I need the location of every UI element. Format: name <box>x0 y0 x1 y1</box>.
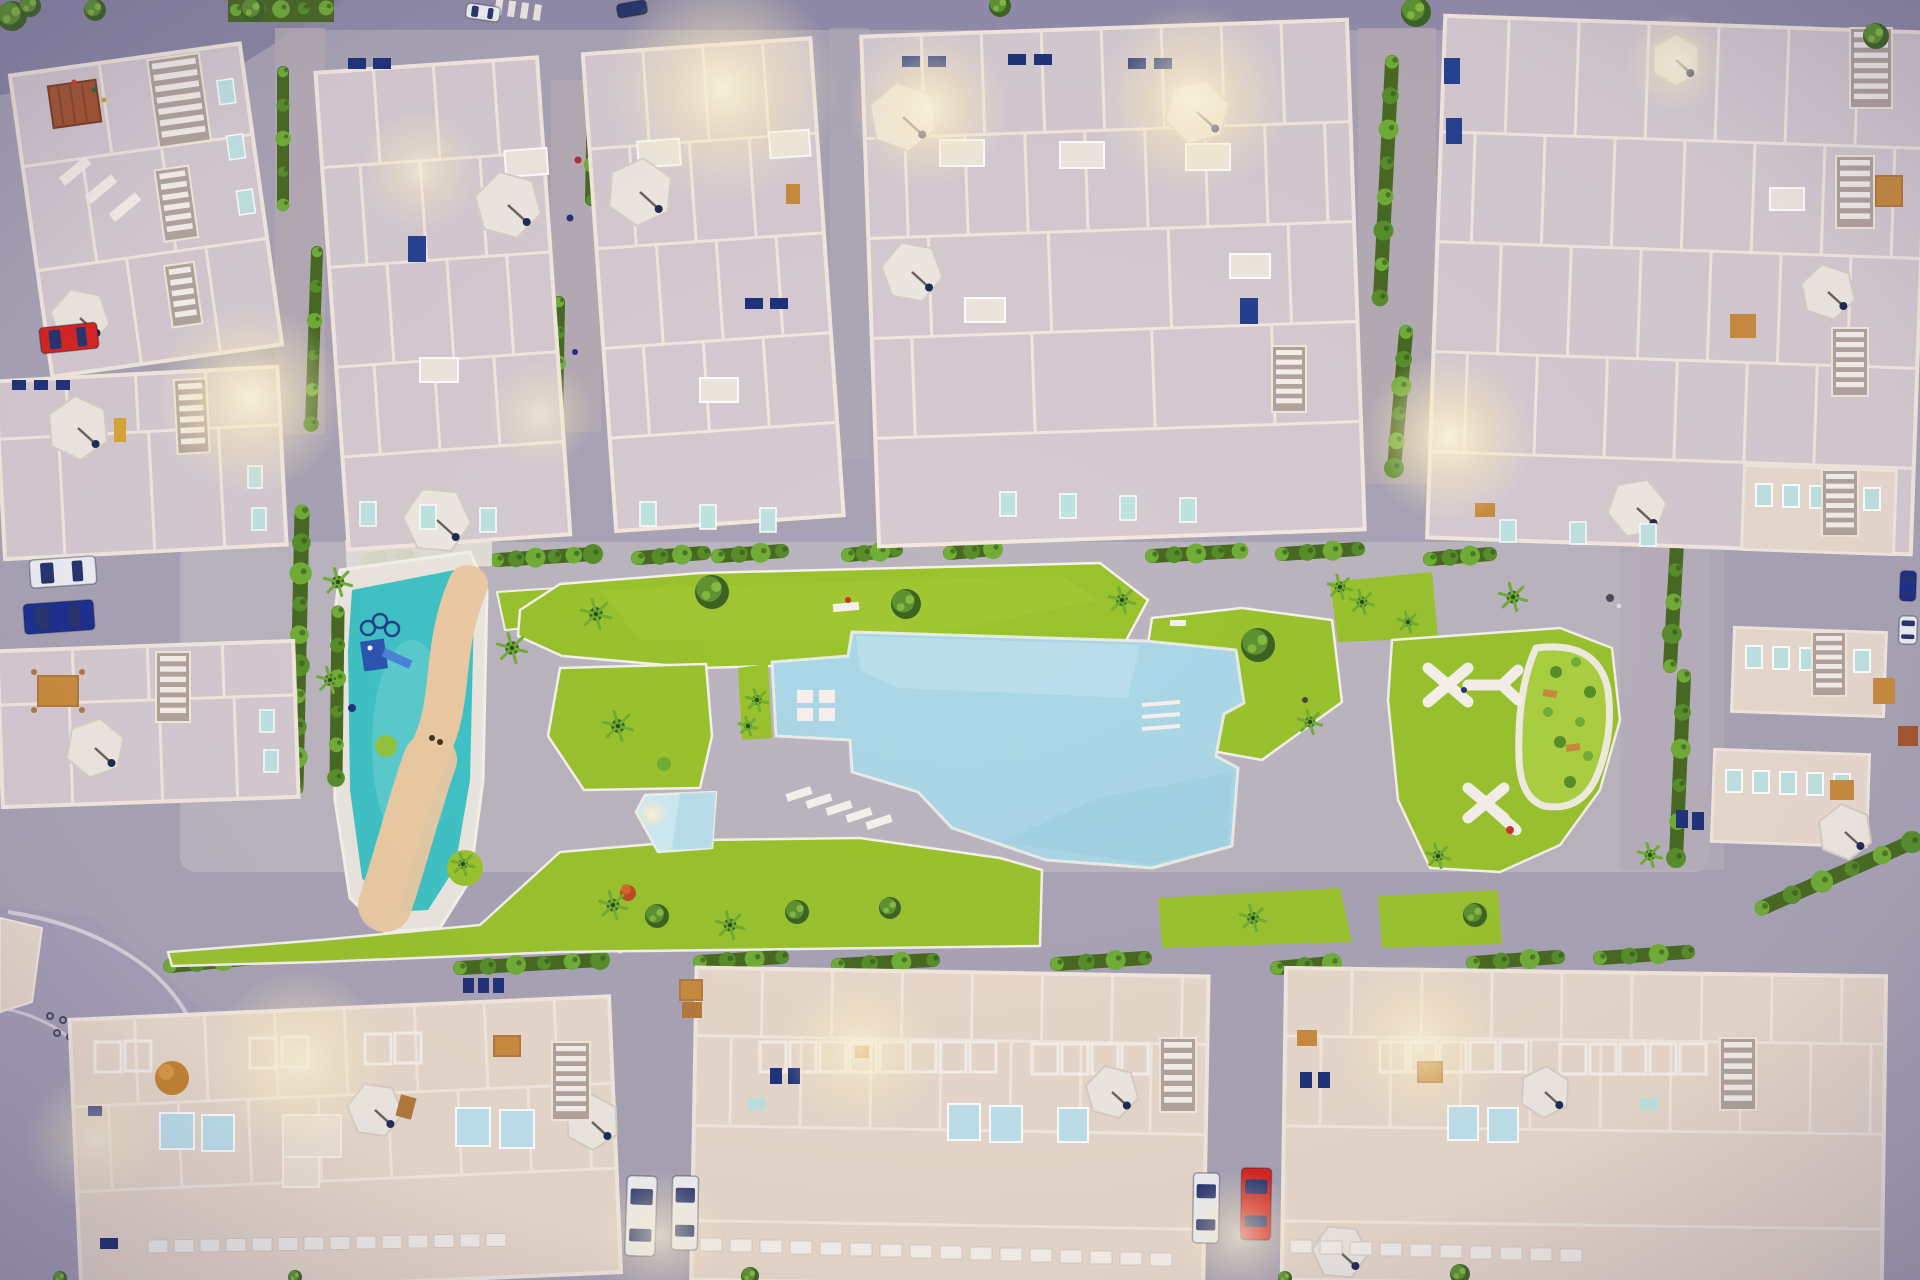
scene-svg <box>0 0 1920 1280</box>
screenshot <box>0 0 1920 1280</box>
vignette <box>0 0 1920 1280</box>
